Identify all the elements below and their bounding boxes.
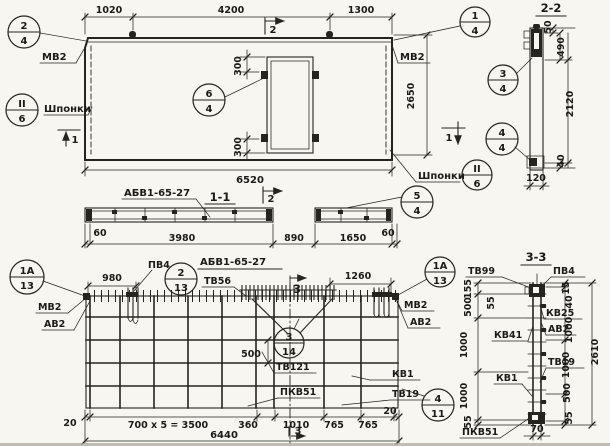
callout-6-4: 6 4 bbox=[193, 79, 262, 116]
section-2-2-title: 2-2 bbox=[536, 1, 566, 16]
svg-text:КВ41: КВ41 bbox=[494, 330, 522, 341]
dim-6520: 6520 bbox=[236, 175, 264, 186]
svg-text:4: 4 bbox=[435, 394, 442, 405]
callout-2-13: 2 13 bbox=[165, 263, 197, 295]
svg-text:14: 14 bbox=[282, 347, 296, 358]
plan-mv2-left: МВ2 bbox=[36, 298, 86, 313]
elevation-top-dims: 1020 4200 1300 bbox=[82, 5, 396, 34]
svg-text:55: 55 bbox=[463, 415, 474, 428]
elevation-width-dim: 6520 bbox=[82, 162, 396, 186]
svg-text:АБВ1-65-27: АБВ1-65-27 bbox=[124, 188, 190, 199]
pkv51-label: ПКВ51 bbox=[248, 387, 320, 406]
svg-text:2-2: 2-2 bbox=[541, 1, 562, 15]
svg-text:2: 2 bbox=[21, 21, 28, 32]
svg-text:1260: 1260 bbox=[345, 271, 372, 282]
beam-left bbox=[85, 208, 273, 222]
svg-text:КВ1: КВ1 bbox=[496, 373, 518, 384]
dim-120: 120 bbox=[526, 173, 546, 184]
svg-text:6: 6 bbox=[206, 89, 213, 100]
section-cut-2-top: 2 bbox=[265, 18, 284, 36]
dim-890: 890 bbox=[284, 233, 304, 244]
svg-text:4: 4 bbox=[499, 128, 506, 139]
hairpin-anchor-right bbox=[372, 288, 392, 318]
column-cross-section bbox=[525, 274, 546, 425]
hairpin-anchor-left bbox=[126, 288, 138, 324]
beam-right bbox=[315, 208, 392, 222]
svg-text:МВ2: МВ2 bbox=[38, 302, 61, 313]
shponki-label-left: Шпонки bbox=[44, 104, 91, 115]
mv2-left-label: МВ2 bbox=[40, 44, 87, 63]
svg-text:1А: 1А bbox=[433, 261, 448, 272]
svg-text:11: 11 bbox=[431, 409, 445, 420]
svg-text:155: 155 bbox=[463, 279, 474, 299]
svg-text:360: 360 bbox=[238, 420, 258, 431]
svg-text:20: 20 bbox=[63, 418, 77, 429]
svg-text:500: 500 bbox=[463, 297, 474, 317]
callout-3-4: 3 4 bbox=[488, 58, 532, 95]
svg-text:МВ2: МВ2 bbox=[42, 52, 67, 63]
kv25-label: КВ25 bbox=[540, 305, 582, 319]
svg-text:1: 1 bbox=[472, 11, 479, 22]
dim-300-top: 300 bbox=[233, 56, 244, 76]
shponki-label-right: Шпонки bbox=[418, 171, 465, 182]
dim-1300: 1300 bbox=[348, 5, 375, 16]
dim-2650: 2650 bbox=[406, 82, 417, 109]
plan-view: 3 3 АБВ1-65-27 ПВ4 ТВ56 980 bbox=[10, 257, 455, 444]
svg-text:ПВ4: ПВ4 bbox=[148, 260, 170, 271]
tv19-label: ТВ19 bbox=[342, 389, 430, 405]
svg-text:ТВ99: ТВ99 bbox=[468, 266, 495, 277]
svg-text:МВ2: МВ2 bbox=[400, 52, 425, 63]
svg-text:765: 765 bbox=[358, 420, 378, 431]
svg-text:ПВ4: ПВ4 bbox=[553, 266, 575, 277]
dim-60-left: 60 bbox=[93, 228, 107, 239]
svg-text:ТВ121: ТВ121 bbox=[276, 362, 310, 373]
svg-text:ТВ56: ТВ56 bbox=[204, 276, 231, 287]
svg-text:4: 4 bbox=[414, 206, 421, 217]
cut-1-label: 1 bbox=[446, 133, 453, 144]
svg-text:3: 3 bbox=[500, 69, 507, 80]
svg-text:II: II bbox=[473, 164, 480, 175]
dim-1020: 1020 bbox=[96, 5, 123, 16]
dim-4200: 4200 bbox=[218, 5, 245, 16]
pv4-label: ПВ4 bbox=[134, 260, 170, 291]
dim-490: 490 bbox=[556, 37, 567, 57]
svg-text:1000: 1000 bbox=[561, 351, 572, 378]
svg-text:4: 4 bbox=[472, 26, 479, 37]
svg-text:II: II bbox=[18, 99, 25, 110]
svg-text:3: 3 bbox=[293, 282, 301, 296]
callout-1a-13-right: 1А 13 bbox=[398, 257, 455, 295]
svg-text:1000: 1000 bbox=[564, 316, 575, 343]
svg-text:АВ2: АВ2 bbox=[44, 319, 65, 330]
svg-text:2: 2 bbox=[268, 194, 275, 205]
elevation-height-dim: 2650 bbox=[394, 32, 432, 159]
section-1-1-title: 1-1 bbox=[205, 190, 235, 204]
section-1-1: АБВ1-65-27 1-1 2 60 3980 890 1650 bbox=[82, 187, 401, 248]
drawing-sheet: 1020 4200 1300 2 1 1 300 bbox=[0, 0, 610, 446]
section-3-3: 3-3 ТВ99 bbox=[459, 250, 601, 440]
svg-text:КВ1: КВ1 bbox=[392, 369, 414, 380]
svg-text:6: 6 bbox=[474, 179, 481, 190]
cut-2-label: 2 bbox=[270, 25, 277, 36]
section-cut-1-left: 1 bbox=[58, 130, 80, 146]
kv1-label: КВ1 bbox=[352, 369, 420, 380]
kv1-label-33: КВ1 bbox=[494, 373, 532, 396]
svg-text:765: 765 bbox=[324, 420, 344, 431]
svg-text:3: 3 bbox=[286, 332, 293, 343]
svg-text:40: 40 bbox=[564, 295, 575, 309]
svg-text:АБВ1-65-27: АБВ1-65-27 bbox=[200, 257, 266, 268]
svg-text:980: 980 bbox=[102, 273, 122, 284]
lintel-rebar-ticks bbox=[240, 285, 336, 300]
svg-text:3-3: 3-3 bbox=[526, 250, 547, 264]
svg-text:700 x 5 = 3500: 700 x 5 = 3500 bbox=[128, 420, 209, 431]
svg-text:15: 15 bbox=[561, 281, 572, 294]
callout-shponki-left: II 6 Шпонки bbox=[6, 94, 92, 126]
plan-bottom-dims: 20 700 x 5 = 3500 360 1010 765 765 20 64… bbox=[63, 406, 402, 444]
dim-2610: 2610 bbox=[590, 338, 601, 365]
svg-text:500: 500 bbox=[241, 349, 261, 360]
svg-text:АВ2: АВ2 bbox=[410, 317, 431, 328]
blueprint-svg: 1020 4200 1300 2 1 1 300 bbox=[0, 0, 610, 446]
callout-4-4: 4 4 bbox=[486, 123, 529, 159]
svg-text:13: 13 bbox=[20, 281, 34, 292]
plan-mesh-grid bbox=[83, 285, 399, 408]
dim-2120: 2120 bbox=[565, 90, 576, 117]
svg-text:1А: 1А bbox=[20, 266, 35, 277]
callout-2-4: 2 4 bbox=[8, 16, 86, 48]
svg-text:МВ2: МВ2 bbox=[404, 300, 427, 311]
svg-text:4: 4 bbox=[206, 104, 213, 115]
lifting-loop-right bbox=[326, 31, 333, 38]
mv2-right-label: МВ2 bbox=[391, 42, 430, 63]
section-2-2: 2-2 50 bbox=[486, 1, 576, 190]
section-cut-1-right: 1 bbox=[442, 122, 465, 144]
elevation-view: 1020 4200 1300 2 1 1 300 bbox=[6, 5, 492, 218]
svg-text:500: 500 bbox=[562, 383, 573, 403]
svg-text:1-1: 1-1 bbox=[210, 190, 231, 204]
kv41-label: КВ41 bbox=[492, 326, 533, 341]
svg-text:6: 6 bbox=[19, 114, 26, 125]
svg-text:4: 4 bbox=[499, 143, 506, 154]
section-cut-2-bottom: 2 bbox=[263, 187, 282, 205]
dim-1650: 1650 bbox=[340, 233, 367, 244]
svg-text:ТВ19: ТВ19 bbox=[392, 389, 419, 400]
dim-55-inner: 55 bbox=[486, 296, 497, 309]
door-offset-dims: 300 300 bbox=[233, 50, 265, 160]
cut-1-label: 1 bbox=[72, 135, 79, 146]
dim-60-right: 60 bbox=[381, 228, 395, 239]
callout-1a-13-left: 1А 13 bbox=[10, 260, 85, 296]
svg-text:5: 5 bbox=[414, 191, 421, 202]
svg-text:13: 13 bbox=[433, 276, 447, 287]
svg-text:55: 55 bbox=[564, 411, 575, 424]
svg-text:13: 13 bbox=[174, 283, 188, 294]
svg-text:4: 4 bbox=[500, 84, 507, 95]
lifting-loop-left bbox=[129, 31, 136, 38]
dim-70: 70 bbox=[530, 424, 544, 435]
dim-6440: 6440 bbox=[210, 430, 238, 441]
svg-text:4: 4 bbox=[21, 36, 28, 47]
panel-cross-section bbox=[524, 24, 544, 170]
svg-text:1000: 1000 bbox=[459, 331, 470, 358]
section-1-1-dims: 60 3980 890 1650 60 bbox=[82, 224, 401, 248]
svg-text:2: 2 bbox=[178, 268, 185, 279]
dim-50: 50 bbox=[543, 20, 554, 34]
callout-shponki-right: Шпонки II 6 bbox=[390, 150, 492, 190]
dim-3980: 3980 bbox=[169, 233, 196, 244]
door-opening bbox=[261, 57, 319, 153]
svg-text:ПКВ51: ПКВ51 bbox=[280, 387, 316, 398]
svg-text:20: 20 bbox=[383, 406, 397, 417]
beam-mark-label: АБВ1-65-27 bbox=[122, 188, 210, 217]
dim-300-bottom: 300 bbox=[233, 137, 244, 157]
svg-text:1000: 1000 bbox=[459, 382, 470, 409]
section-3-3-title: 3-3 bbox=[521, 250, 551, 265]
plan-mv2-right: МВ2 bbox=[396, 299, 434, 311]
dim-40: 40 bbox=[556, 154, 567, 168]
plan-title: АБВ1-65-27 bbox=[198, 257, 282, 269]
svg-text:1010: 1010 bbox=[283, 420, 310, 431]
